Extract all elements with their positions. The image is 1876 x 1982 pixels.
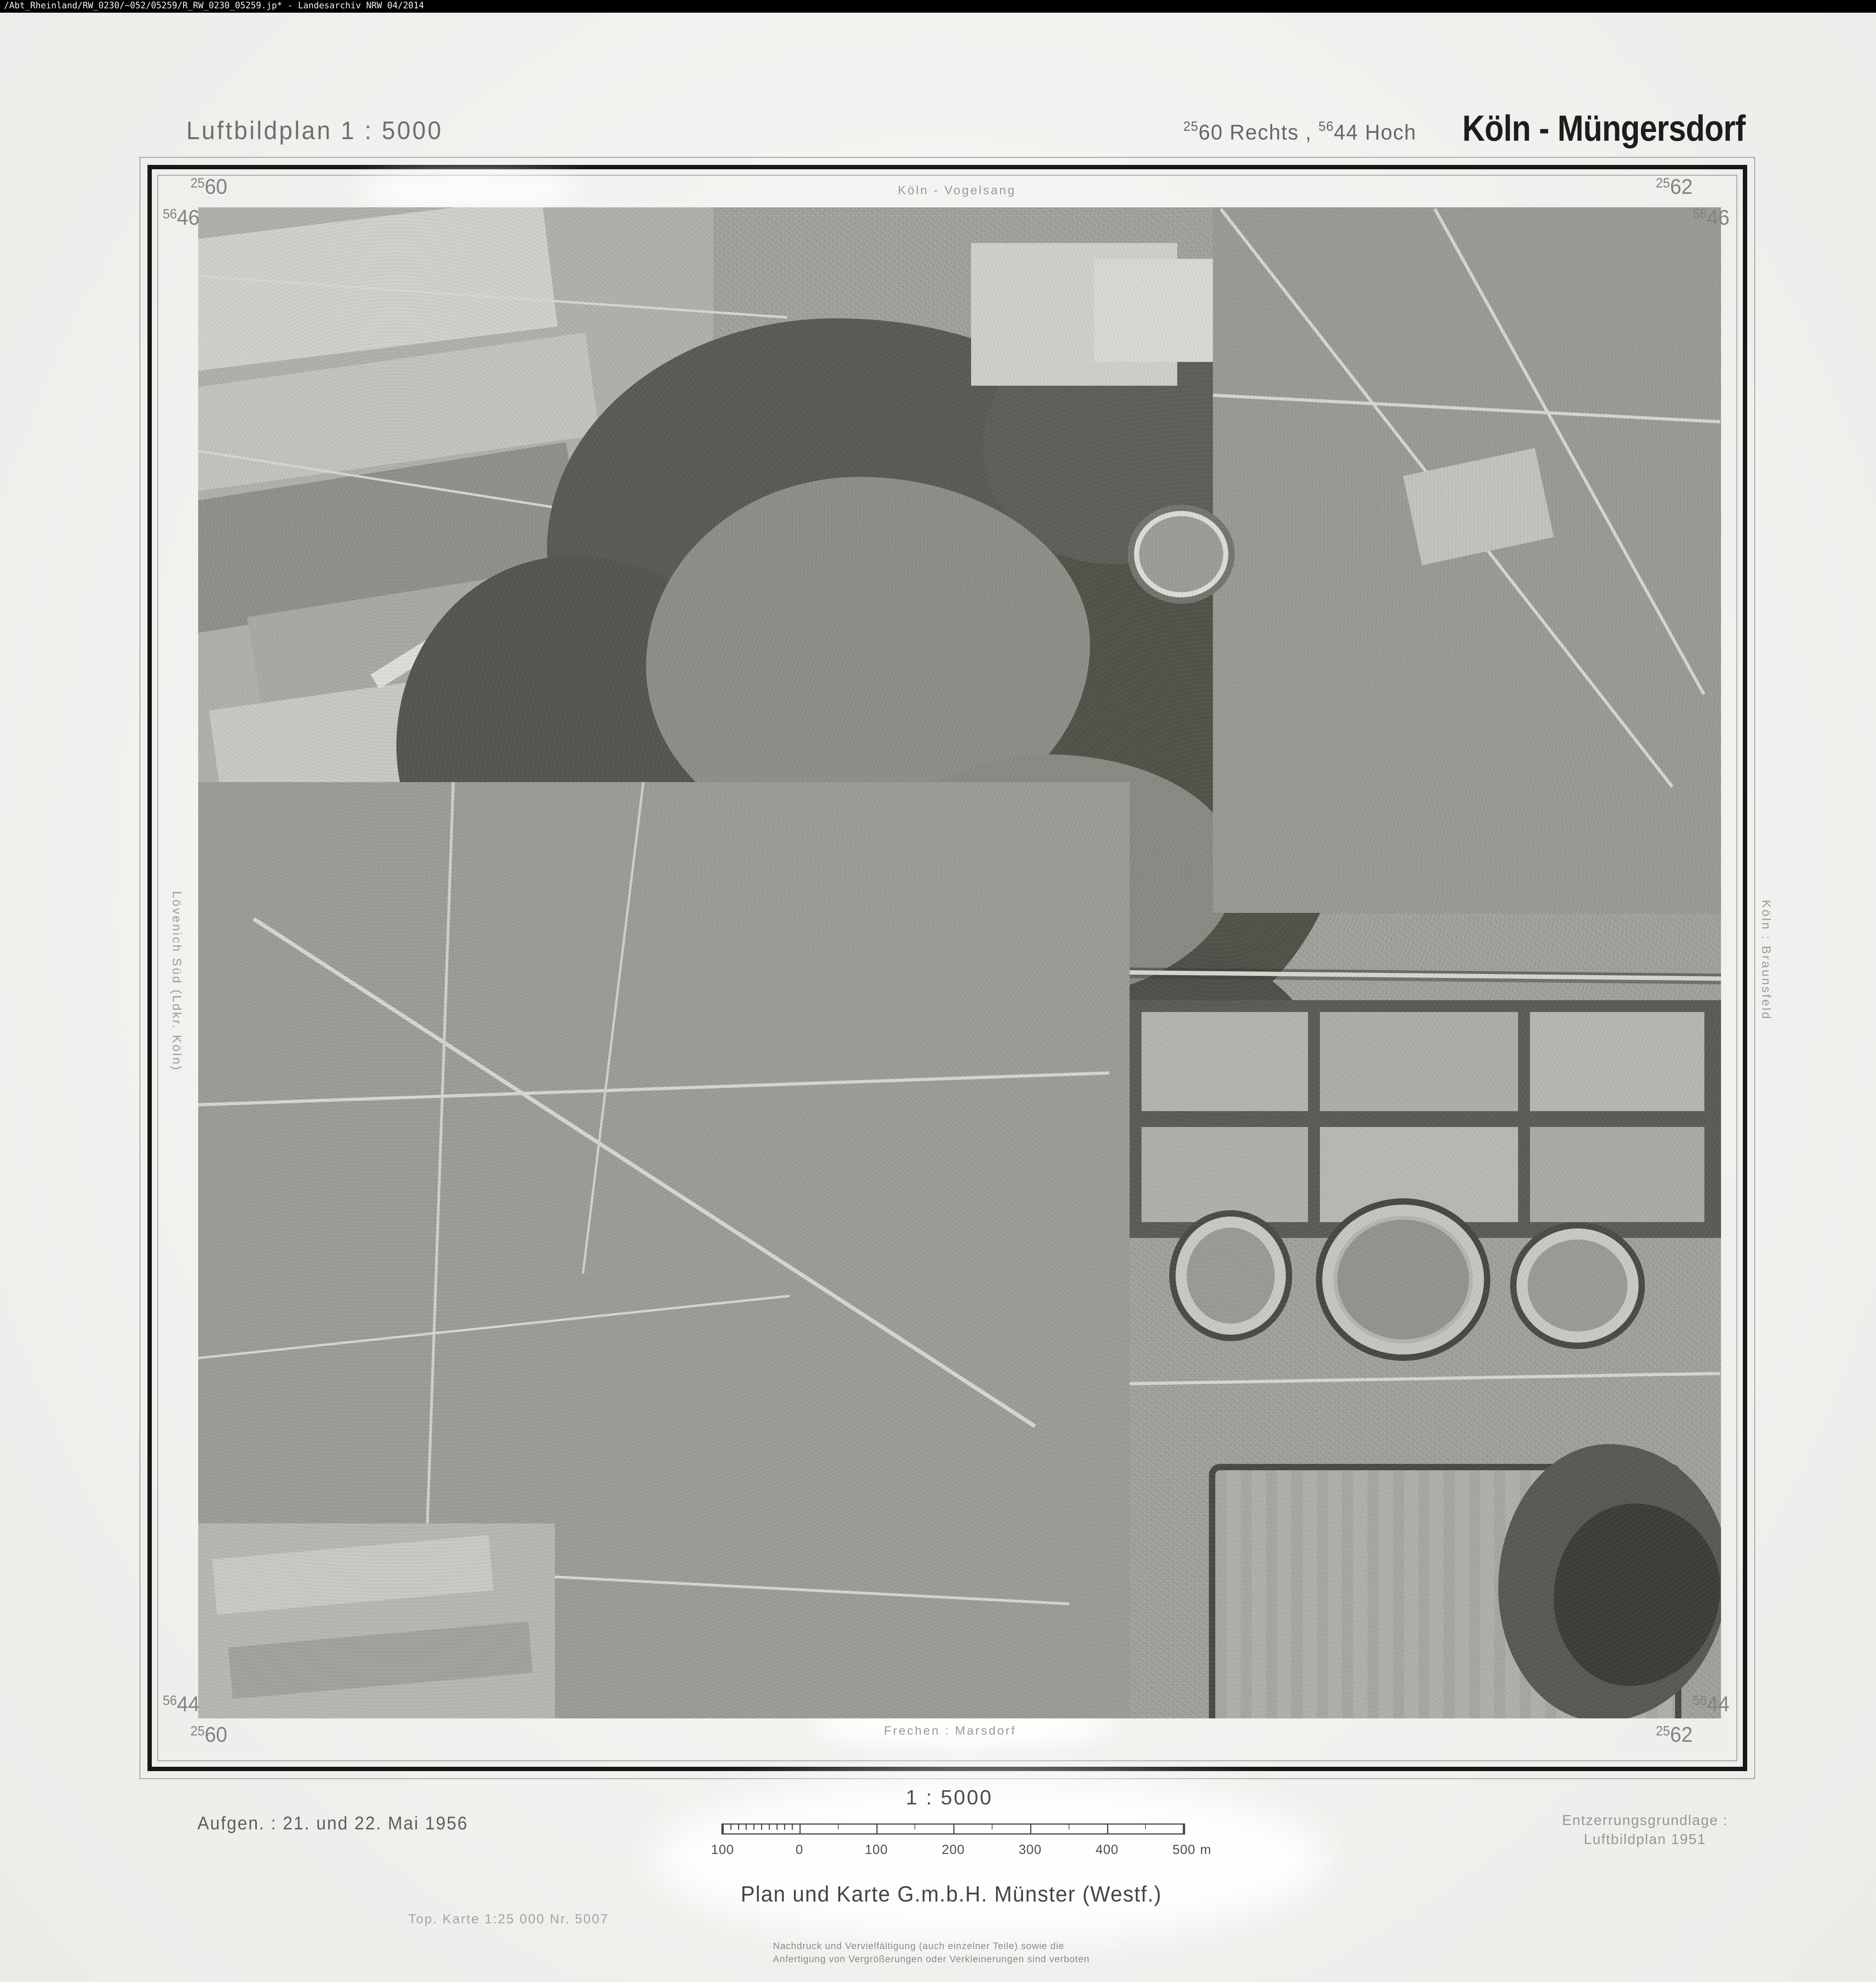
scale-label: 0	[796, 1842, 803, 1857]
athletics-oval	[1169, 1210, 1292, 1341]
sheet-title: Köln - Müngersdorf	[1462, 108, 1745, 149]
edge-label-north: Köln - Vogelsang	[898, 183, 1016, 197]
copyright-line-2: Anfertigung von Vergrößerungen oder Verk…	[674, 1953, 1229, 1966]
scale-label: 300	[1019, 1842, 1042, 1857]
sports-field	[1320, 1012, 1518, 1111]
cycling-track-oval	[1128, 505, 1235, 604]
grid-ref-rechts-num: 60	[1199, 121, 1223, 144]
grid-number-bottom-left-y: 5644	[163, 1692, 199, 1716]
aerial-photograph	[198, 207, 1721, 1718]
archive-filename-text: /Abt_Rheinland/RW_0230/~052/05259/R_RW_0…	[4, 1, 424, 11]
sports-field	[1530, 1012, 1704, 1111]
grid-ref-rechts-word: Rechts ,	[1223, 121, 1319, 144]
publisher-imprint: Plan und Karte G.m.b.H. Münster (Westf.)	[594, 1881, 1309, 1907]
sports-field	[1142, 1012, 1308, 1111]
scale-bar: 100 0 100 200 300 400 500 m	[721, 1823, 1185, 1835]
copyright-notice: Nachdruck und Vervielfältigung (auch ein…	[674, 1940, 1229, 1966]
base-map-note: Top. Karte 1:25 000 Nr. 5007	[408, 1911, 609, 1927]
grid-number-bottom-right-x: 2562	[1656, 1722, 1692, 1747]
urban-region	[1213, 207, 1721, 913]
grid-number-top-left-x: 2560	[190, 174, 227, 199]
grid-ref-rechts-sup: 25	[1183, 119, 1199, 134]
survey-date: Aufgen. : 21. und 22. Mai 1956	[197, 1812, 468, 1834]
rectification-line-2: Luftbildplan 1951	[1526, 1830, 1764, 1849]
track-ring	[1134, 511, 1228, 597]
scale-label: 200	[942, 1842, 965, 1857]
scale-label: 500	[1172, 1842, 1195, 1857]
series-title: Luftbildplan 1 : 5000	[186, 116, 443, 145]
grid-number-top-right-x: 2562	[1656, 174, 1692, 199]
edge-label-south: Frechen : Marsdorf	[884, 1724, 1016, 1738]
grid-ref-hoch-num: 44	[1334, 121, 1358, 144]
grid-number-bottom-left-x: 2560	[190, 1722, 227, 1747]
scale-title: 1 : 5000	[850, 1786, 1048, 1810]
scale-label: 100	[865, 1842, 888, 1857]
main-stadium-oval	[1316, 1198, 1490, 1361]
grid-number-top-left-y: 5646	[163, 205, 199, 230]
scale-bar-minor-ticks	[723, 1825, 799, 1830]
copyright-line-1: Nachdruck und Vervielfältigung (auch ein…	[674, 1940, 1229, 1953]
rectification-line-1: Entzerrungsgrundlage :	[1526, 1811, 1764, 1830]
infield	[1333, 1216, 1473, 1343]
sports-field	[1142, 1127, 1308, 1222]
scan-glare	[357, 174, 579, 206]
scale-unit: m	[1200, 1842, 1211, 1857]
infield	[1528, 1240, 1627, 1332]
grid-reference: 2560 Rechts , 5644 Hoch	[1183, 119, 1417, 145]
grid-number-top-right-y: 5646	[1692, 205, 1729, 230]
sports-field	[1530, 1127, 1704, 1222]
athletics-oval	[1510, 1222, 1645, 1349]
edge-label-west: Lövenich Süd (Ldkr. Köln)	[170, 891, 184, 1071]
grid-number-bottom-right-y: 5644	[1692, 1692, 1729, 1716]
scale-label: 100	[711, 1842, 734, 1857]
grid-ref-hoch-word: Hoch	[1358, 121, 1417, 144]
scale-label: 400	[1096, 1842, 1119, 1857]
archive-filename-bar: /Abt_Rheinland/RW_0230/~052/05259/R_RW_0…	[0, 0, 1876, 13]
scanned-map-sheet: /Abt_Rheinland/RW_0230/~052/05259/R_RW_0…	[0, 0, 1876, 1982]
rectification-note: Entzerrungsgrundlage : Luftbildplan 1951	[1526, 1811, 1764, 1849]
grid-ref-hoch-sup: 56	[1318, 119, 1334, 134]
edge-label-east: Köln : Braunsfeld	[1759, 900, 1773, 1020]
infield	[1187, 1228, 1275, 1324]
